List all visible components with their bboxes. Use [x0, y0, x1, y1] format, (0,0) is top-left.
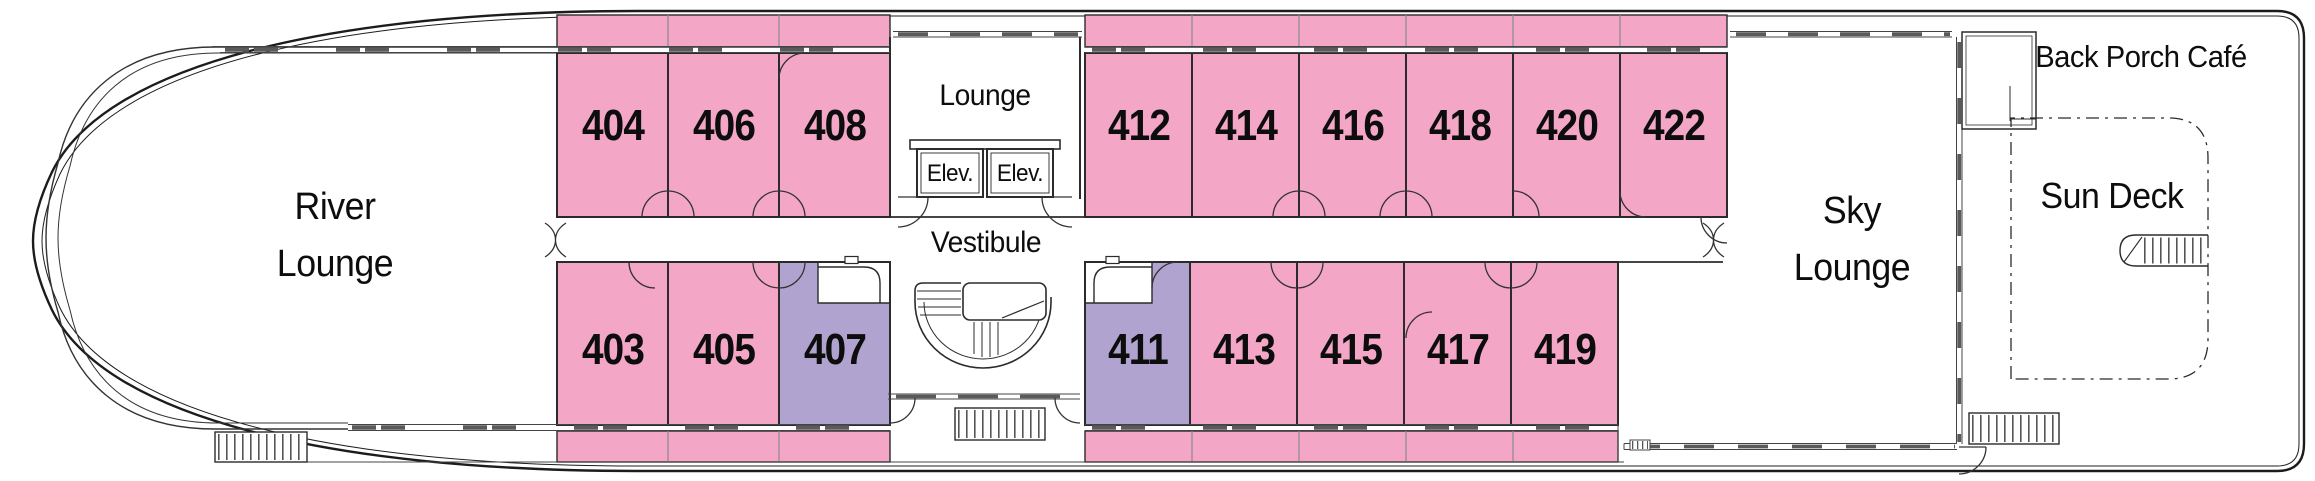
- sky-lounge-stairs: [1630, 413, 2059, 450]
- back-porch-cafe-label: Back Porch Café: [2035, 39, 2247, 75]
- cabin-number-406: 406: [693, 101, 755, 151]
- river-lounge-line1: River: [277, 179, 393, 236]
- cabin-number-413: 413: [1213, 325, 1275, 375]
- cabin-number-408: 408: [804, 101, 866, 151]
- corridor-walls: [557, 217, 1727, 262]
- river-lounge-line2: Lounge: [277, 236, 393, 293]
- sun-deck-stairs: [2120, 235, 2208, 266]
- sky-lounge-line2: Lounge: [1794, 240, 1910, 297]
- cabin-number-416: 416: [1322, 101, 1384, 151]
- bow-gangway-stairs: [215, 432, 307, 462]
- cabin-number-415: 415: [1320, 325, 1382, 375]
- cabin-number-405: 405: [693, 325, 755, 375]
- cabin-number-412: 412: [1108, 101, 1170, 151]
- sky-lounge-line1: Sky: [1794, 183, 1910, 240]
- cabin-number-417: 417: [1427, 325, 1489, 375]
- vestibule-label: Vestibule: [931, 226, 1041, 260]
- vestibule-gangway-stairs: [955, 408, 1045, 440]
- vestibule-stair: [915, 283, 1051, 368]
- cabin-number-407: 407: [804, 325, 866, 375]
- elevator-2-label: Elev.: [997, 160, 1043, 188]
- cabin-number-420: 420: [1536, 101, 1598, 151]
- elevator-1-label: Elev.: [927, 160, 973, 188]
- cabin-number-419: 419: [1534, 325, 1596, 375]
- cabin-number-422: 422: [1643, 101, 1705, 151]
- cabin-number-404: 404: [582, 101, 644, 151]
- break-marks: [545, 223, 1724, 257]
- window-bands: [212, 32, 1962, 463]
- cabin-number-403: 403: [582, 325, 644, 375]
- deck-plan: River Lounge Lounge Elev. Elev. Vestibul…: [0, 0, 2315, 481]
- cabin-number-418: 418: [1429, 101, 1491, 151]
- cabin-number-411: 411: [1108, 325, 1168, 375]
- sky-lounge-label: Sky Lounge: [1794, 183, 1910, 297]
- sun-deck-label: Sun Deck: [2041, 169, 2184, 223]
- river-lounge-label: River Lounge: [277, 179, 393, 293]
- cabin-number-414: 414: [1215, 101, 1277, 151]
- shaft-box: [1962, 32, 2036, 129]
- lounge-label: Lounge: [939, 79, 1030, 113]
